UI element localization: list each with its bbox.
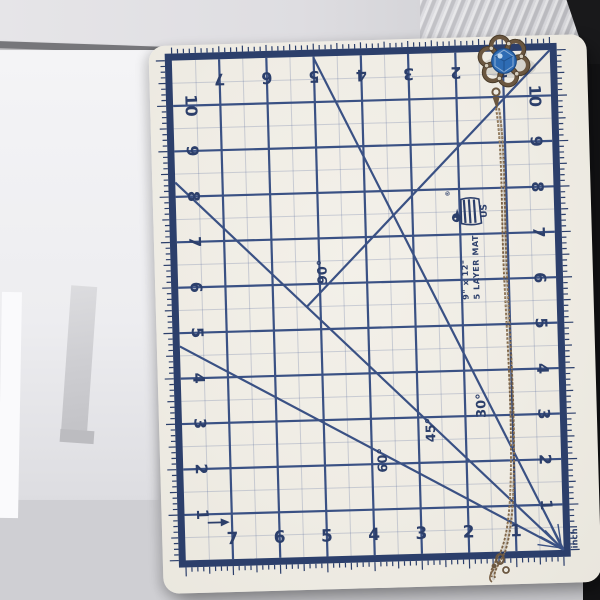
ruler-number-right: 3: [534, 408, 553, 420]
angle-line-45: [175, 172, 563, 560]
ruler-number-top: 1: [497, 62, 509, 81]
mat-size-label: 9" x 12": [460, 235, 471, 300]
registered-mark: ®: [445, 190, 452, 196]
ruler-number-top: 5: [308, 67, 320, 86]
angle-label-45: 45°: [424, 417, 440, 442]
ruler-number-right: 10: [525, 85, 545, 108]
ruler-number-bottom: 7: [226, 529, 238, 549]
brand-flag-text: US: [479, 204, 489, 218]
ruler-number-right: 9: [527, 136, 546, 148]
ruler-number-left: 3: [190, 418, 209, 430]
ruler-number-left: 8: [184, 191, 203, 203]
ruler-number-left: 7: [185, 236, 204, 248]
brand-eagle-logo: US ®: [449, 192, 490, 229]
ruler-number-left: 5: [188, 327, 207, 339]
photo-scene: 765432176543211098765432110987654321 9" …: [0, 0, 600, 600]
mat-layers-label: 5 LAYER MAT: [471, 235, 482, 300]
ruler-number-bottom: 6: [274, 528, 286, 548]
eagle-flag-icon: US: [449, 192, 490, 229]
ruler-number-left: 2: [192, 463, 211, 475]
arrow-mark-head: [221, 518, 230, 526]
acrylic-block-base: [60, 429, 95, 444]
ruler-number-left: 4: [189, 372, 208, 384]
ruler-number-left: 10: [181, 94, 201, 117]
cutting-mat: 765432176543211098765432110987654321 9" …: [148, 34, 600, 594]
ruler-number-top: 2: [450, 63, 462, 82]
ruler-number-bottom: 4: [368, 525, 381, 545]
ruler-number-right: 1: [537, 499, 556, 511]
ruler-number-top: 3: [403, 64, 415, 83]
ruler-number-right: 2: [535, 454, 554, 466]
ruler-number-bottom: 5: [321, 526, 333, 546]
angle-label-30: 30°: [474, 393, 490, 418]
ruler-number-left: 6: [187, 281, 206, 293]
ruler-number-top: 4: [355, 66, 367, 85]
angle-label-90: 90°: [315, 259, 331, 284]
inch-label: inch: [570, 530, 580, 548]
ruler-number-right: 7: [529, 226, 548, 238]
brand-logo-block: 9" x 12" 5 LAYER MAT US ®: [446, 186, 493, 307]
ruler-number-right: 6: [530, 272, 549, 284]
ruler-number-left: 9: [183, 145, 202, 157]
ruler-number-bottom: 2: [462, 522, 474, 542]
ruler-number-left: 1: [193, 509, 212, 521]
ruler-number-right: 4: [533, 363, 552, 375]
mat-ruler-grid: 765432176543211098765432110987654321: [148, 34, 600, 594]
angle-label-60: 60°: [376, 448, 392, 473]
ruler-number-bottom: 1: [510, 521, 522, 541]
ruler-number-right: 8: [528, 181, 547, 193]
ruler-number-top: 6: [261, 68, 273, 87]
ruler-number-bottom: 3: [415, 524, 427, 544]
angle-line-30: [314, 52, 564, 556]
ruler-number-right: 5: [532, 317, 551, 329]
ruler-number-top: 7: [214, 70, 226, 89]
